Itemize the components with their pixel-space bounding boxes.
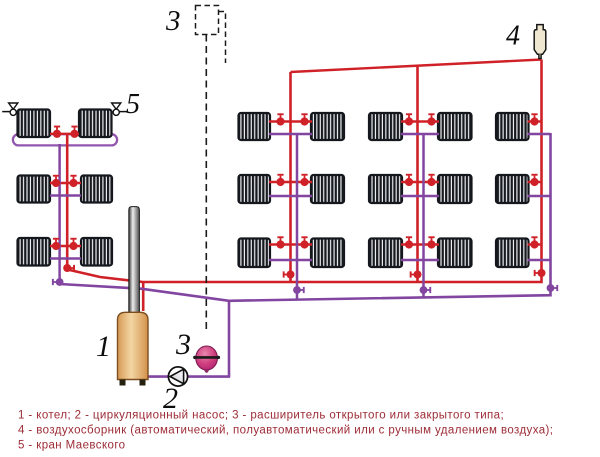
svg-text:3: 3 [175, 328, 191, 361]
svg-text:1 - котел; 2 - циркуляционный: 1 - котел; 2 - циркуляционный насос; 3 -… [18, 410, 504, 422]
svg-text:1: 1 [96, 330, 111, 363]
svg-text:4 - воздухосборник (автоматиче: 4 - воздухосборник (автоматический, полу… [18, 425, 553, 437]
svg-text:3: 3 [165, 5, 181, 37]
svg-text:5 - кран Маевского: 5 - кран Маевского [18, 440, 126, 452]
svg-text:5: 5 [126, 89, 140, 120]
svg-text:4: 4 [506, 21, 520, 52]
